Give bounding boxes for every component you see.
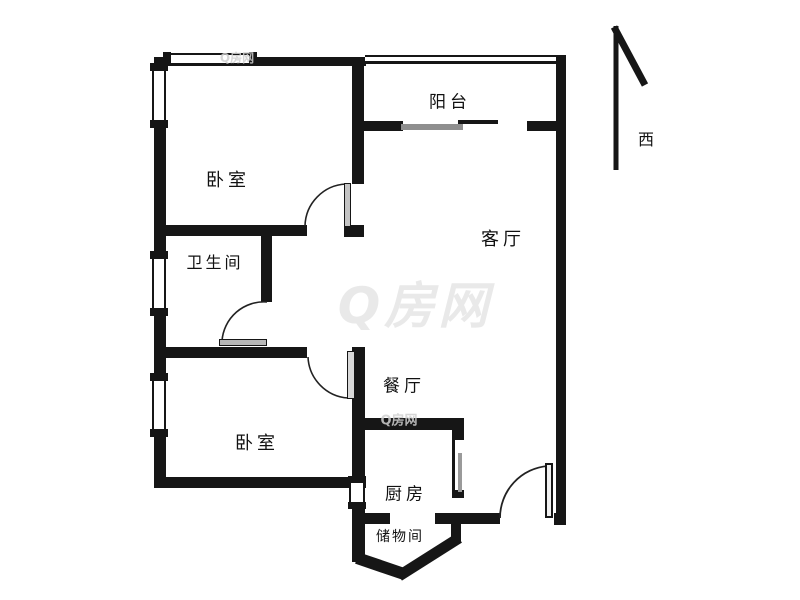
plan-linework xyxy=(0,0,800,600)
door-arc-bedroom2 xyxy=(308,357,348,398)
window-cap xyxy=(150,308,168,316)
door-leaf-bathroom xyxy=(219,339,267,346)
watermark-small: Q房网 xyxy=(380,415,417,428)
kitchen-sliding-door-track xyxy=(452,440,455,490)
room-label-bedroom-top: 卧室 xyxy=(206,172,250,190)
room-label-dining-room: 餐厅 xyxy=(383,379,425,396)
door-leaf-bedroom2 xyxy=(347,351,355,399)
door-leaf-bedroom1 xyxy=(344,183,351,227)
door-arc-entrance xyxy=(500,466,548,518)
door-arc-bathroom xyxy=(222,302,267,341)
door-leaf-entrance xyxy=(545,463,553,518)
room-label-kitchen: 厨房 xyxy=(385,487,427,504)
window-cap xyxy=(348,502,366,509)
compass-arrow-head xyxy=(614,27,645,85)
window-cap xyxy=(150,373,168,381)
watermark-small: Q房网 xyxy=(220,52,254,64)
window-cap xyxy=(150,120,168,128)
kitchen-sliding-door-panel xyxy=(458,453,462,492)
room-label-bathroom: 卫生间 xyxy=(186,255,243,271)
window-cap xyxy=(150,429,168,437)
room-label-storage: 储物间 xyxy=(376,530,424,544)
room-label-balcony: 阳台 xyxy=(429,95,471,112)
compass-direction-label: 西 xyxy=(638,132,654,148)
window-cap xyxy=(150,63,168,71)
balcony-sliding-door-track xyxy=(458,120,498,124)
room-label-living-room: 客厅 xyxy=(481,231,525,249)
door-arc-bedroom1 xyxy=(305,184,346,226)
window-cap xyxy=(150,251,168,259)
balcony-sliding-door-panel xyxy=(401,124,463,130)
window-cap xyxy=(348,476,366,483)
room-label-bedroom-bottom: 卧室 xyxy=(235,435,279,453)
floorplan-canvas: Q房网 xyxy=(0,0,800,600)
